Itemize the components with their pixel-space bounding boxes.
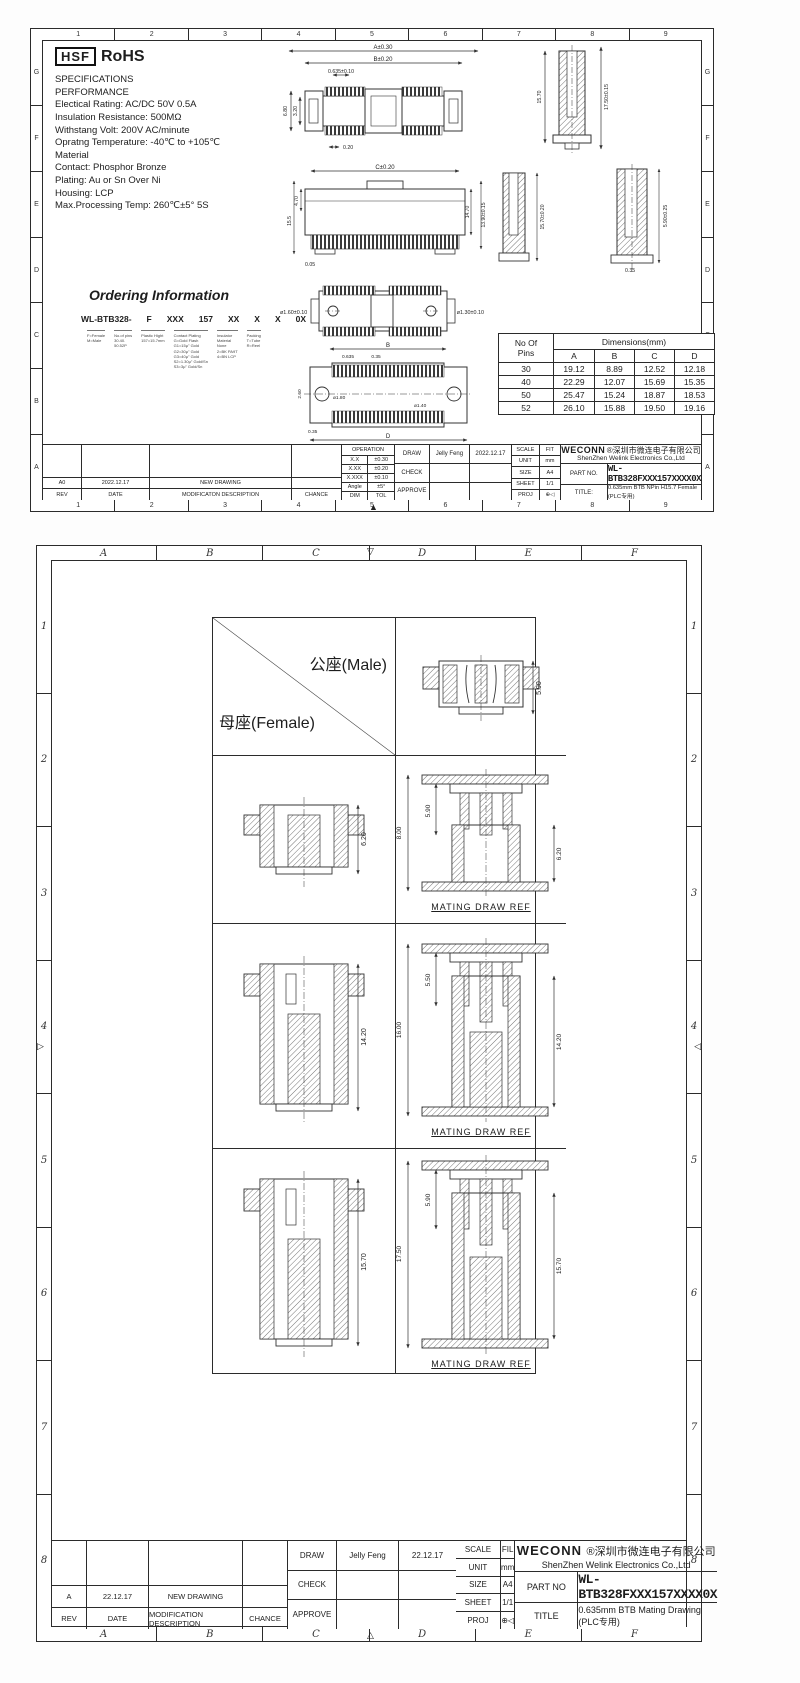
dim-cell: 52 [499, 401, 553, 414]
sign-name: Jelly Feng [336, 1541, 398, 1570]
zone-label: B [157, 1627, 263, 1641]
dim-label: 0.35 [625, 268, 635, 274]
dim-cell: 19.16 [674, 401, 714, 414]
zone-label: 7 [687, 1361, 701, 1495]
zone-label: A [31, 435, 42, 500]
zone-label: A [51, 1627, 157, 1641]
zone-label: 6 [37, 1228, 51, 1362]
spec-line: Plating: Au or Sn Over Ni [55, 175, 315, 188]
sign-name [429, 482, 469, 500]
ordering-heading: Ordering Information [89, 287, 229, 303]
zone-label: 3 [37, 827, 51, 961]
rev-cell: A0 [43, 477, 81, 488]
tol-label: Angle [342, 483, 368, 491]
meta-label: PROJ [456, 1612, 501, 1629]
ordering-code: WL-BTB328-FXXX157XXXX0X [81, 314, 306, 324]
sign-date [398, 1599, 456, 1629]
dim-label: 3.20 [293, 106, 299, 116]
company-block: WECONN ®深圳市微连电子有限公司 ShenZhen Welink Elec… [561, 445, 701, 500]
sign-label: DRAW [395, 445, 429, 463]
zone-label: 3 [687, 827, 701, 961]
dim-label: 14.70 [465, 206, 471, 219]
meta-label: SCALE [512, 445, 540, 455]
center-mark: △ [367, 1631, 374, 1640]
rev-header-cell: CHANCE [291, 488, 341, 500]
pcb-layout-drawing: B 0.635 0.35 ø1.80 ø1.40 2.60 0.35 D [296, 341, 481, 447]
dim-col-header: D [674, 349, 714, 362]
dim-label: 15.70±0.20 [540, 204, 546, 229]
zone-label: 5 [687, 1094, 701, 1228]
female-connector-cell: 6.20 [213, 755, 395, 923]
zone-label: 2 [115, 500, 188, 511]
dim-label: 15.70 [556, 1257, 563, 1274]
center-mark: ◁ [694, 1042, 701, 1051]
dim-label: 0.35 [371, 354, 381, 360]
company-name: WECONN [517, 1543, 582, 1558]
dim-label: 8.00 [396, 826, 403, 839]
zone-label: 6 [687, 1228, 701, 1362]
zone-label: C [31, 303, 42, 369]
zone-label: F [31, 106, 42, 172]
specifications-block: SPECIFICATIONSPERFORMANCEElectical Ratin… [55, 74, 315, 213]
sign-name [429, 463, 469, 481]
zone-label: 4 [262, 29, 335, 40]
projection-symbol: ⊕◁ [540, 490, 560, 500]
tol-label: X.XX [342, 465, 368, 473]
meta-table: SCALEFIL UNITmm SIZEA4 SHEET1/1 PROJ⊕◁ [456, 1541, 515, 1629]
meta-value: mm [501, 1559, 514, 1576]
ordering-legend: F=Female M=MaleNo.of pins 30.40. 50.52PP… [87, 330, 261, 369]
zone-label: A [51, 546, 157, 560]
legend-item: Plastic Hight 157=15.7mm [141, 330, 164, 369]
female-connector-drawing: 6.20 [238, 785, 370, 895]
dim-col-header: A [553, 349, 594, 362]
tol-value: TOL [368, 492, 393, 500]
legend-item: No.of pins 30.40. 50.52P [114, 330, 132, 369]
dim-label: 0.20 [343, 145, 353, 151]
dim-label: 5.90 [536, 681, 543, 695]
zone-label: 9 [630, 29, 702, 40]
center-mark: ▽ [367, 547, 374, 556]
pin-top-view: ø1.60±0.10 ø1.30±0.10 [279, 281, 485, 341]
side-view-mid-left: 15.70±0.20 [495, 167, 547, 271]
dim-label: 5.90 [425, 804, 432, 817]
signature-table: DRAW Jelly Feng 22.12.17 CHECK APPROVE [288, 1541, 456, 1629]
dim-label: 17.50 [396, 1245, 403, 1262]
spec-line: Withstang Volt: 200V AC/minute [55, 125, 315, 138]
meta-label: SCALE [456, 1541, 501, 1558]
dim-label: 0.05 [305, 262, 315, 268]
dim-cell: 15.35 [674, 375, 714, 388]
dim-cell: 15.88 [594, 401, 634, 414]
dim-label: B±0.20 [374, 57, 394, 63]
zone-label: 2 [37, 694, 51, 828]
zone-label: E [31, 172, 42, 238]
dim-cell: 25.47 [553, 388, 594, 401]
rev-header-cell: DATE [86, 1607, 148, 1629]
zone-label: 7 [483, 29, 556, 40]
company-name-cn: ®深圳市微连电子有限公司 [586, 1546, 715, 1558]
tol-label: X.X [342, 456, 368, 464]
code-part: 157 [199, 314, 213, 324]
hsf-logo: HSF [55, 47, 96, 66]
mating-drawing: 16.00 5.50 14.20 [396, 936, 566, 1124]
tol-value: ±0.20 [368, 465, 393, 473]
drawing-area-page2: 公座(Male) 母座(Female) [51, 560, 687, 1627]
company-name: WECONN [561, 445, 605, 455]
dim-cell: 18.87 [634, 388, 674, 401]
male-connector-cell: 5.90 [395, 618, 566, 755]
dim-label: ø1.30±0.10 [457, 310, 484, 316]
sign-date [469, 463, 511, 481]
zone-label: 4 [262, 500, 335, 511]
dim-label: ø1.80 [333, 395, 346, 401]
zone-label: E [476, 1627, 582, 1641]
spec-line: Insulation Resistance: 500MΩ [55, 112, 315, 125]
top-view-drawing: A±0.30 B±0.20 0.635±0.10 6.80 3.2 [281, 41, 486, 157]
rev-cell [242, 1585, 287, 1607]
male-label: 公座(Male) [310, 651, 387, 675]
zone-label: 1 [42, 500, 115, 511]
rev-cell: A [52, 1585, 86, 1607]
dim-label: 0.635±0.10 [328, 69, 354, 75]
dim-col-header: C [634, 349, 674, 362]
meta-label: SHEET [456, 1594, 501, 1611]
center-mark: ▲ [369, 503, 378, 512]
sign-label: APPROVE [288, 1599, 336, 1629]
spec-line: PERFORMANCE [55, 87, 315, 100]
sign-date: 22.12.17 [398, 1541, 456, 1570]
zone-label: 1 [687, 560, 701, 694]
sign-name: Jelly Feng [429, 445, 469, 463]
dim-cell: 19.50 [634, 401, 674, 414]
dim-label: 6.20 [556, 847, 563, 860]
dim-label: 6.80 [283, 106, 289, 116]
sign-date: 2022.12.17 [469, 445, 511, 463]
meta-value: mm [540, 456, 560, 466]
drawing-area-page1: HSF RoHS SPECIFICATIONSPERFORMANCEElecti… [42, 40, 702, 500]
zone-label: 5 [336, 29, 409, 40]
dimension-table: No Of Pins Dimensions(mm) A B C D 30 19.… [498, 333, 715, 415]
zone-label: F [702, 106, 713, 172]
legend-item: Packing T=Tube R=Reel [247, 330, 261, 369]
zone-label: 9 [630, 500, 702, 511]
mating-matrix-table: 公座(Male) 母座(Female) [212, 617, 536, 1374]
dim-label: C±0.20 [375, 165, 395, 171]
tol-value: ±0.10 [368, 474, 393, 482]
side-view-mid-right: 5.90±0.25 0.35 [599, 163, 675, 275]
dim-label: 15.70 [537, 90, 543, 103]
rev-cell: 2022.12.17 [81, 477, 149, 488]
dim-label: 0.635 [342, 354, 354, 360]
front-view-drawing: C±0.20 4.70 15.5 14.70 13.90±0.15 0.05 [291, 163, 487, 271]
zone-label: E [702, 172, 713, 238]
matrix-header-cell: 公座(Male) 母座(Female) [213, 618, 395, 755]
dim-cell: 22.29 [553, 375, 594, 388]
rev-cell: NEW DRAWING [149, 477, 291, 488]
zone-label: 7 [37, 1361, 51, 1495]
drawing-title: 0.635mm BTB NPin H15.7 Female (PLC专用) [608, 485, 701, 500]
meta-label: SHEET [512, 479, 540, 489]
spec-line: Material [55, 150, 315, 163]
code-part: WL-BTB328- [81, 314, 132, 324]
dim-table-header-pins: No Of Pins [499, 334, 553, 362]
dim-label: B [386, 343, 390, 349]
female-connector-drawing: 14.20 [238, 944, 370, 1129]
code-part: F [147, 314, 152, 324]
zone-label: 6 [409, 29, 482, 40]
zone-label: 8 [556, 500, 629, 511]
zone-label: 1 [37, 560, 51, 694]
tol-value: ±0.30 [368, 456, 393, 464]
code-part: XXX [167, 314, 184, 324]
diagonal-divider [213, 618, 395, 755]
female-label: 母座(Female) [219, 709, 315, 733]
rev-header-cell: REV [52, 1607, 86, 1629]
title-block-page2: DRAW Jelly Feng 22.12.17 CHECK APPROVE S… [287, 1540, 686, 1629]
spec-line: Contact: Phosphor Bronze [55, 162, 315, 175]
meta-label: SIZE [456, 1577, 501, 1594]
zone-label: 8 [37, 1495, 51, 1628]
mating-caption: MATING DRAW REF [431, 1359, 531, 1369]
meta-value: 1/1 [540, 479, 560, 489]
projection-symbol: ⊕◁ [501, 1612, 514, 1629]
zone-label: G [31, 40, 42, 106]
zone-band-left: 12345678 [37, 560, 51, 1627]
zone-label: F [582, 546, 687, 560]
legend-item: Contact Plating G=Gold Flash G1=15μ" Gol… [174, 330, 208, 369]
dim-label: 4.70 [294, 196, 300, 206]
zone-label: C [263, 1627, 369, 1641]
dim-cell: 40 [499, 375, 553, 388]
spec-line: Electical Rating: AC/DC 50V 0.5A [55, 99, 315, 112]
meta-label: UNIT [456, 1559, 501, 1576]
mating-drawing: 17.50 5.90 15.70 [396, 1153, 566, 1356]
meta-value: FIL [501, 1541, 514, 1558]
dim-cell: 19.12 [553, 362, 594, 375]
sign-label: CHECK [395, 463, 429, 481]
dim-label: 14.20 [556, 1033, 563, 1050]
dim-label: 5.90 [425, 1193, 432, 1206]
zone-label: 3 [189, 500, 262, 511]
dim-cell: 15.24 [594, 388, 634, 401]
sign-name [336, 1599, 398, 1629]
code-part: X [254, 314, 260, 324]
dim-cell: 12.18 [674, 362, 714, 375]
sign-name [336, 1570, 398, 1600]
zone-label: 4 [687, 961, 701, 1095]
company-name-cn: ®深圳市微连电子有限公司 [607, 446, 701, 455]
signature-table: DRAW Jelly Feng 2022.12.17 CHECK APPROVE [395, 445, 512, 500]
female-connector-cell: 15.70 [213, 1148, 395, 1373]
dim-label: D [386, 434, 391, 440]
dim-label: ø1.60±0.10 [280, 310, 307, 316]
tol-value: ±5° [368, 483, 393, 491]
dim-cell: 18.53 [674, 388, 714, 401]
part-number: WL-BTB328FXXX157XXXX0X [608, 464, 701, 484]
dim-label: 5.90±0.25 [663, 205, 669, 227]
side-view-top-right: 15.70 17.50±0.15 [535, 43, 613, 155]
part-number: WL-BTB328FXXX157XXXX0X [578, 1572, 717, 1602]
rohs-logo: RoHS [101, 48, 145, 66]
dim-label: 15.5 [287, 216, 293, 226]
rev-cell: NEW DRAWING [148, 1585, 242, 1607]
rev-header-cell: MODIFICATION DESCRIPTION [148, 1607, 242, 1629]
zone-label: 5 [37, 1094, 51, 1228]
spec-line: Opratng Temperature: -40℃ to +105℃ [55, 137, 315, 150]
zone-band-top: 123456789 [42, 29, 702, 40]
meta-value: A4 [540, 467, 560, 477]
zone-label: A [702, 435, 713, 500]
zone-label: D [370, 1627, 476, 1641]
sheet-page2: ABCDEF ABCDEF 12345678 12345678 ▽ △ ▷ ◁ … [36, 545, 702, 1642]
sign-label: DRAW [288, 1541, 336, 1570]
center-mark: ▷ [37, 1042, 44, 1051]
spec-line: Housing: LCP [55, 188, 315, 201]
company-name-en: ShenZhen Welink Electronics Co.,Ltd [542, 1560, 691, 1571]
zone-label: F [582, 1627, 687, 1641]
zone-label: B [31, 369, 42, 435]
zone-label: 2 [687, 694, 701, 828]
zone-label: 1 [42, 29, 115, 40]
tolerance-header: OPERATION [342, 445, 394, 456]
revision-table: A 22.12.17 NEW DRAWING REV DATE MODIFICA… [52, 1540, 287, 1629]
dim-label: 13.90±0.15 [481, 202, 487, 227]
zone-label: 3 [189, 29, 262, 40]
female-connector-drawing: 15.70 [238, 1159, 370, 1364]
dim-label: 15.70 [361, 1253, 368, 1271]
drawing-title: 0.635mm BTB Mating Drawing (PLC专用) [578, 1603, 717, 1629]
rev-header-cell: CHANCE [242, 1607, 287, 1629]
mating-cell: 17.50 5.90 15.70 MATING DRAW REF [395, 1148, 566, 1373]
revision-table: A0 2022.12.17 NEW DRAWING REV DATE MODIF… [43, 444, 341, 500]
part-no-label: PART NO. [561, 464, 608, 484]
zone-label: 8 [556, 29, 629, 40]
mating-caption: MATING DRAW REF [431, 1127, 531, 1137]
zone-label: E [476, 546, 582, 560]
dim-label: 17.50±0.15 [604, 84, 610, 110]
title-block-page1: OPERATION X.X±0.30 X.XX±0.20 X.XXX±0.10 … [341, 444, 701, 500]
mating-cell: 8.00 5.90 6.20 MATING DRAW REF [395, 755, 566, 923]
sign-label: APPROVE [395, 482, 429, 500]
spec-line: SPECIFICATIONS [55, 74, 315, 87]
rev-header-cell: MODIFICATON DESCRIPTION [149, 488, 291, 500]
zone-label: 4 [37, 961, 51, 1095]
dim-label: ø1.40 [414, 403, 427, 409]
rev-header-cell: REV [43, 488, 81, 500]
document-canvas: 123456789 123456789 GFEDCBA GFEDCBA ▲ HS… [0, 0, 800, 1683]
zone-label: B [157, 546, 263, 560]
zone-band-right: GFEDCBA [702, 40, 713, 500]
dim-table-header-dims: Dimensions(mm) [553, 334, 714, 349]
zone-label: C [263, 546, 369, 560]
dim-label: 14.20 [361, 1028, 368, 1046]
female-connector-cell: 14.20 [213, 923, 395, 1148]
rev-cell [291, 477, 341, 488]
dim-cell: 15.69 [634, 375, 674, 388]
zone-band-right: 12345678 [687, 560, 701, 1627]
meta-value: A4 [501, 1577, 514, 1594]
mating-caption: MATING DRAW REF [431, 902, 531, 912]
company-name-en: ShenZhen Welink Electronics Co.,Ltd [577, 455, 685, 462]
dim-cell: 26.10 [553, 401, 594, 414]
dim-cell: 30 [499, 362, 553, 375]
male-connector-drawing: 5.90 [415, 631, 547, 743]
meta-value: FIT [540, 445, 560, 455]
title-label: TITLE: [561, 485, 608, 500]
zone-label: D [31, 238, 42, 304]
zone-band-left: GFEDCBA [31, 40, 42, 500]
dim-label: 2.60 [297, 389, 303, 399]
zone-label: D [370, 546, 476, 560]
meta-table: SCALEFIT UNITmm SIZEA4 SHEET1/1 PROJ⊕◁ [512, 445, 561, 500]
title-label: TITLE [515, 1603, 578, 1629]
logo-row: HSF RoHS [55, 47, 145, 66]
dim-label: A±0.30 [374, 45, 394, 51]
meta-value: 1/1 [501, 1594, 514, 1611]
dim-cell: 50 [499, 388, 553, 401]
company-block: WECONN ®深圳市微连电子有限公司 ShenZhen Welink Elec… [515, 1541, 717, 1629]
sign-date [398, 1570, 456, 1600]
meta-label: UNIT [512, 456, 540, 466]
code-part: XX [228, 314, 239, 324]
tolerance-table: OPERATION X.X±0.30 X.XX±0.20 X.XXX±0.10 … [342, 445, 395, 500]
part-no-label: PART NO [515, 1572, 578, 1602]
zone-label: D [702, 238, 713, 304]
meta-label: SIZE [512, 467, 540, 477]
dim-cell: 12.07 [594, 375, 634, 388]
spec-line: Max.Processing Temp: 260℃±5° 5S [55, 200, 315, 213]
zone-label: 2 [115, 29, 188, 40]
sign-label: CHECK [288, 1570, 336, 1600]
dim-col-header: B [594, 349, 634, 362]
zone-label: 7 [483, 500, 556, 511]
tol-label: DIM [342, 492, 368, 500]
dim-label: 6.20 [361, 832, 368, 846]
zone-label: 6 [409, 500, 482, 511]
dim-cell: 8.89 [594, 362, 634, 375]
dim-cell: 12.52 [634, 362, 674, 375]
zone-label: G [702, 40, 713, 106]
meta-label: PROJ [512, 490, 540, 500]
dim-label: 0.35 [308, 429, 318, 435]
tol-label: X.XXX [342, 474, 368, 482]
sign-date [469, 482, 511, 500]
legend-item: F=Female M=Male [87, 330, 105, 369]
mating-drawing: 8.00 5.90 6.20 [396, 767, 566, 899]
dim-label: 5.50 [425, 973, 432, 986]
mating-cell: 16.00 5.50 14.20 MATING DRAW REF [395, 923, 566, 1148]
rev-cell: 22.12.17 [86, 1585, 148, 1607]
sheet-page1: 123456789 123456789 GFEDCBA GFEDCBA ▲ HS… [30, 28, 714, 512]
rev-header-cell: DATE [81, 488, 149, 500]
legend-item: Insulator Material None 2=BK PA9T 4=BN L… [217, 330, 238, 369]
dim-label: 16.00 [396, 1021, 403, 1038]
